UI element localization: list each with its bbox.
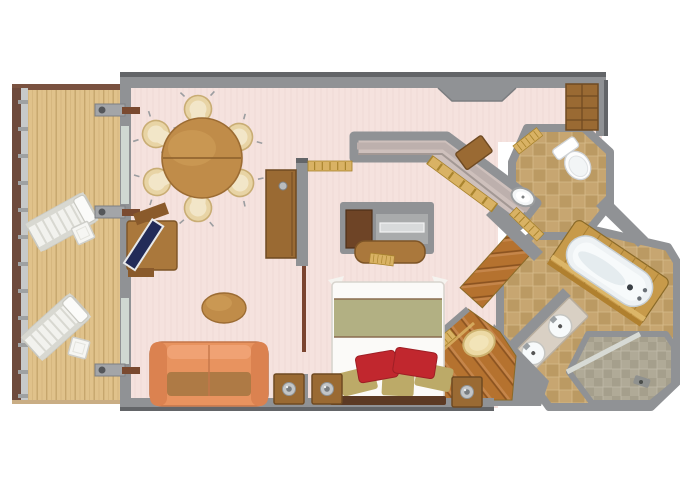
wardrobe-cabinet <box>566 84 598 130</box>
shower-drain <box>639 380 643 384</box>
bottom-wall-edge <box>120 407 494 411</box>
tv-screen-bedroom <box>380 223 424 232</box>
balcony <box>12 84 124 404</box>
table-highlight <box>168 130 216 166</box>
divider-screen <box>302 266 306 352</box>
balcony-glass-door <box>121 298 129 364</box>
sideboard-knob <box>279 182 287 190</box>
headboard <box>330 396 446 405</box>
balcony-bottom-edge <box>12 400 123 404</box>
balcony-railing-metal <box>21 88 28 404</box>
sofa <box>150 342 268 406</box>
bed-runner <box>334 299 442 337</box>
suite-floor-plan <box>0 0 680 486</box>
desk-shelf <box>128 268 154 277</box>
sofa-arm <box>150 342 167 406</box>
nightstand-lamp <box>312 374 342 404</box>
bedroom-door <box>308 161 352 171</box>
right-wall-edge <box>604 80 608 136</box>
balcony-top-wall <box>12 84 124 91</box>
divider-wall-cap <box>296 158 308 163</box>
nightstand-lamp <box>452 377 482 407</box>
balcony-railing-wood <box>12 88 21 404</box>
sideboard <box>266 170 296 258</box>
sofa-arm <box>251 342 268 406</box>
bed <box>328 276 454 405</box>
coffee-table-highlight <box>206 295 232 311</box>
tv-niche <box>340 202 434 263</box>
side-table-lamp <box>274 374 304 404</box>
floor-plan-canvas <box>0 0 680 486</box>
divider-wall <box>296 158 308 266</box>
balcony-glass-door <box>121 126 129 204</box>
top-wall-edge <box>120 72 606 77</box>
balcony-side-table <box>68 337 90 359</box>
shower <box>567 334 674 403</box>
